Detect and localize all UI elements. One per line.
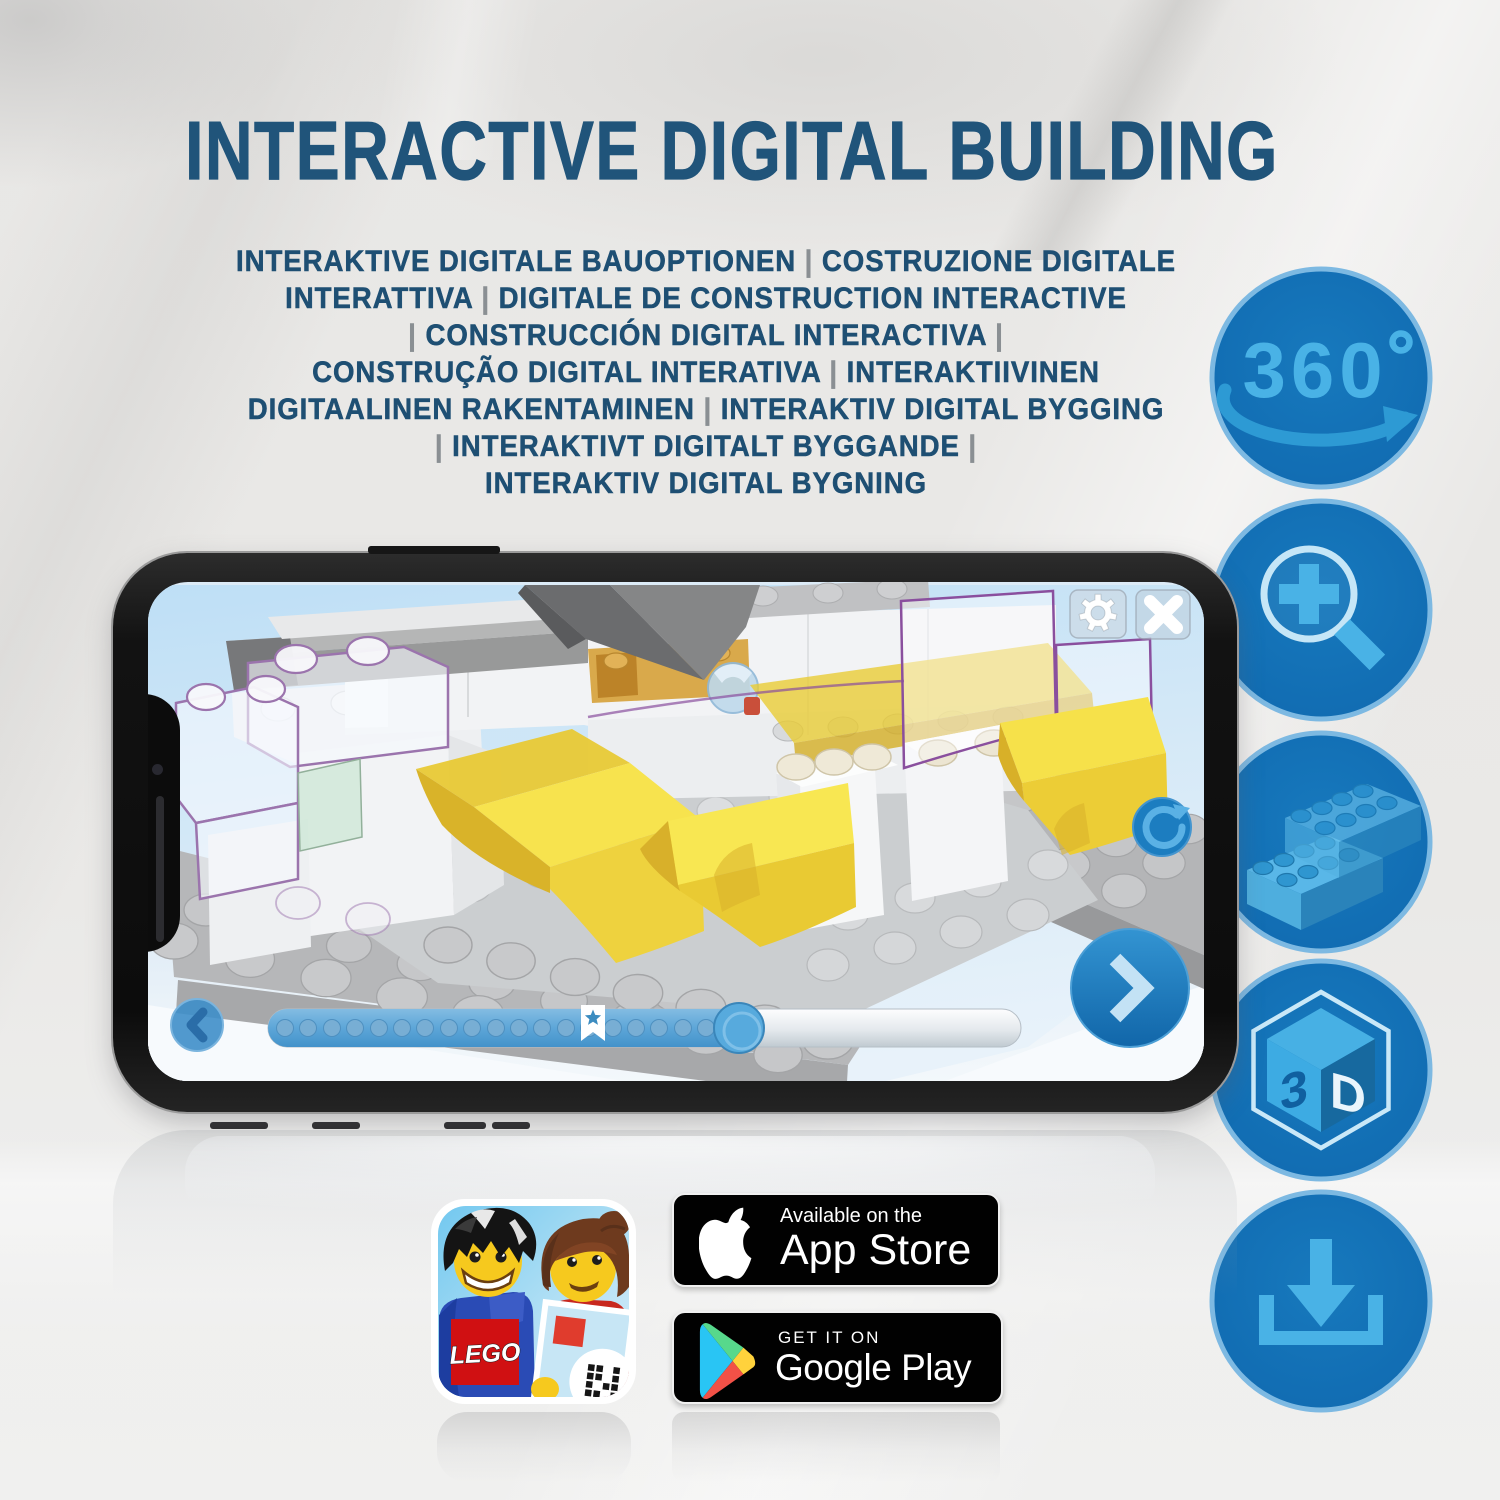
svg-text:LEGO: LEGO — [449, 1338, 522, 1370]
svg-text:D: D — [1330, 1061, 1366, 1127]
svg-text:3: 3 — [1280, 1058, 1308, 1121]
svg-text:360: 360 — [1242, 326, 1387, 414]
